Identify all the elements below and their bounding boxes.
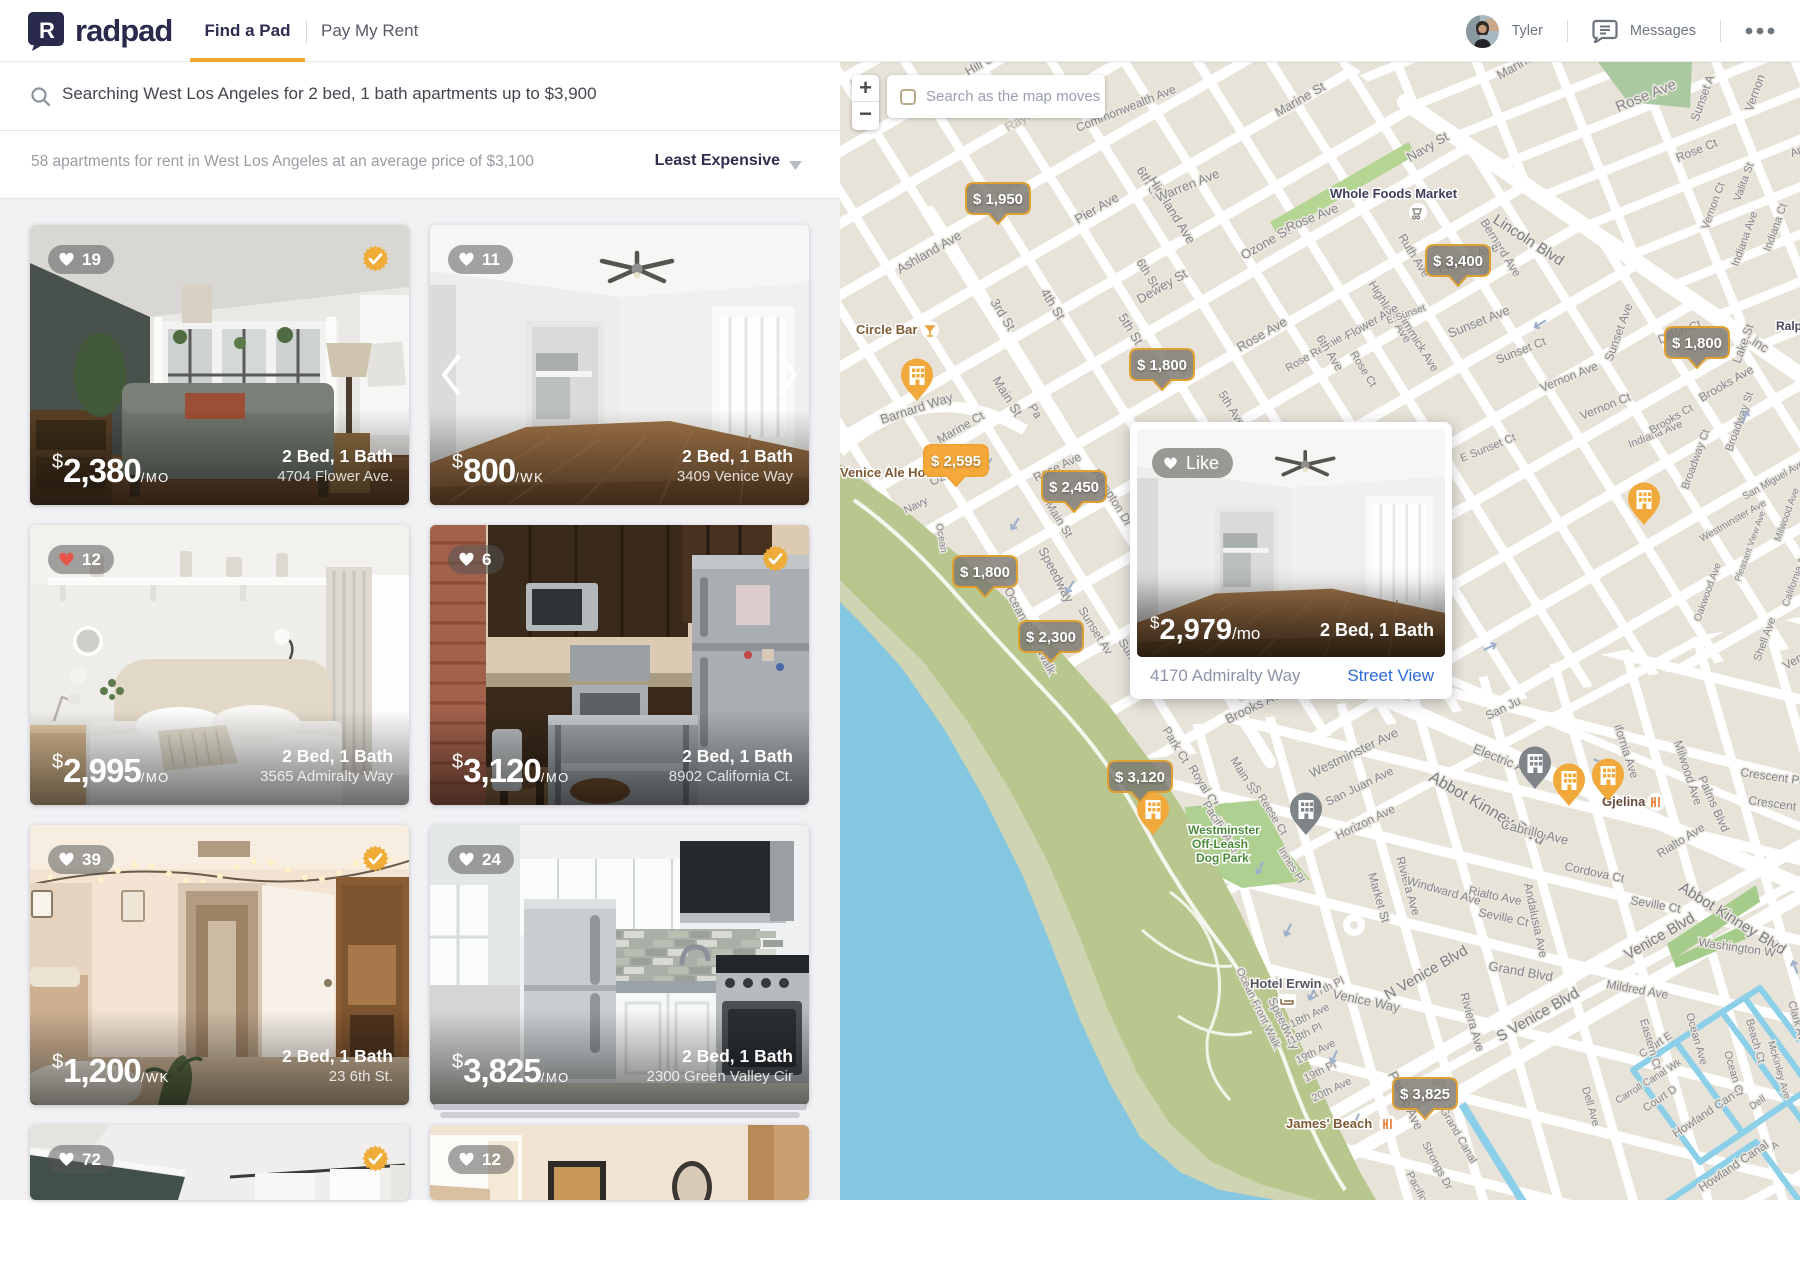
svg-text:$ 2,450: $ 2,450 (1049, 479, 1099, 496)
svg-text:Circle Bar: Circle Bar (856, 322, 917, 337)
svg-text:$ 1,800: $ 1,800 (1672, 335, 1722, 352)
svg-text:Off-Leash: Off-Leash (1192, 837, 1248, 851)
svg-text:$ 1,800: $ 1,800 (1137, 357, 1187, 374)
svg-text:$ 1,800: $ 1,800 (960, 564, 1010, 581)
svg-text:$ 3,400: $ 3,400 (1433, 253, 1483, 270)
svg-text:$ 3,825: $ 3,825 (1400, 1086, 1450, 1103)
svg-text:Hotel Erwin: Hotel Erwin (1250, 976, 1322, 991)
svg-text:R: R (39, 18, 55, 43)
svg-text:James' Beach: James' Beach (1286, 1116, 1372, 1131)
svg-text:Whole Foods Market: Whole Foods Market (1330, 186, 1458, 201)
svg-text:$ 2,595: $ 2,595 (931, 453, 981, 470)
svg-text:Westminster: Westminster (1188, 823, 1260, 837)
svg-text:Dog Park: Dog Park (1196, 851, 1249, 865)
svg-text:$ 2,300: $ 2,300 (1026, 629, 1076, 646)
svg-text:$ 3,120: $ 3,120 (1115, 769, 1165, 786)
svg-text:$ 1,950: $ 1,950 (973, 191, 1023, 208)
svg-text:Ralph: Ralph (1776, 319, 1800, 333)
